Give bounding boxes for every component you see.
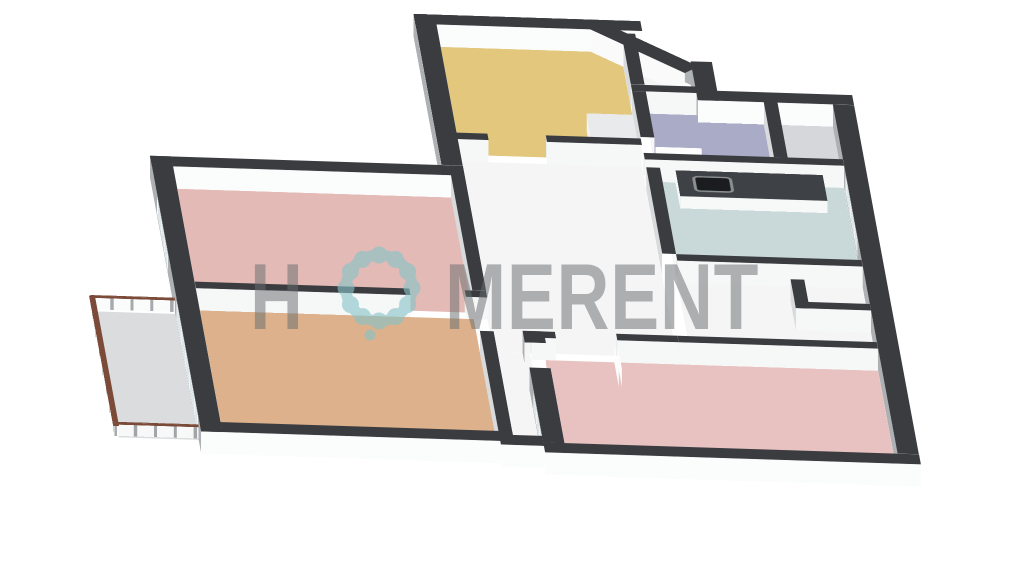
wall-face [466,297,487,320]
wall-face [547,142,642,167]
floorplan-scene [0,0,1024,576]
wall-face [796,308,871,333]
sink [692,176,735,193]
floor-hallway [458,161,677,358]
wall-face [617,340,678,364]
